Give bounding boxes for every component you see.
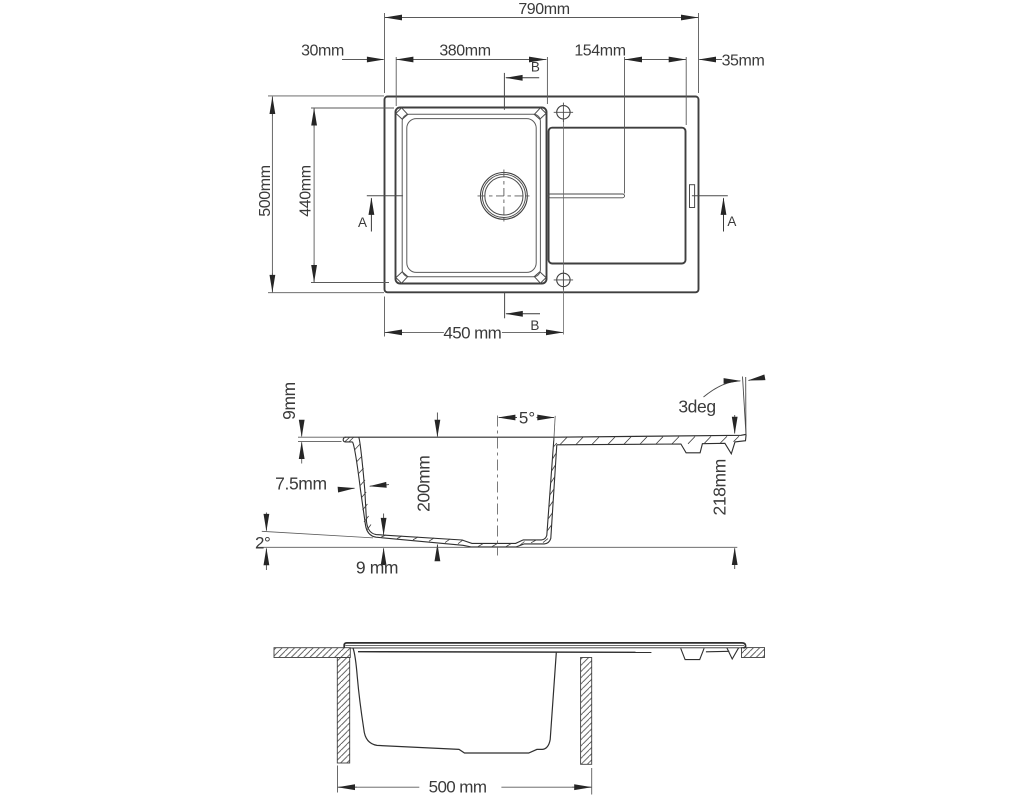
svg-text:B: B xyxy=(530,318,539,333)
svg-text:7.5mm: 7.5mm xyxy=(275,474,326,494)
svg-text:380mm: 380mm xyxy=(439,43,490,60)
svg-text:200mm: 200mm xyxy=(414,456,434,512)
svg-text:9 mm: 9 mm xyxy=(356,558,398,578)
svg-text:2°: 2° xyxy=(255,534,270,553)
svg-text:154mm: 154mm xyxy=(574,43,625,60)
svg-text:500 mm: 500 mm xyxy=(429,778,487,797)
svg-text:A: A xyxy=(727,214,736,229)
svg-text:218mm: 218mm xyxy=(710,459,730,515)
svg-text:9mm: 9mm xyxy=(279,382,299,420)
svg-text:A: A xyxy=(358,215,367,230)
svg-text:500mm: 500mm xyxy=(257,165,274,216)
svg-text:30mm: 30mm xyxy=(301,43,344,60)
svg-text:B: B xyxy=(531,60,540,75)
svg-text:5°: 5° xyxy=(519,409,535,428)
svg-text:450 mm: 450 mm xyxy=(443,323,501,342)
svg-text:440mm: 440mm xyxy=(297,165,314,216)
svg-text:790mm: 790mm xyxy=(518,1,569,18)
svg-text:35mm: 35mm xyxy=(722,53,765,70)
svg-text:3deg: 3deg xyxy=(678,397,715,417)
